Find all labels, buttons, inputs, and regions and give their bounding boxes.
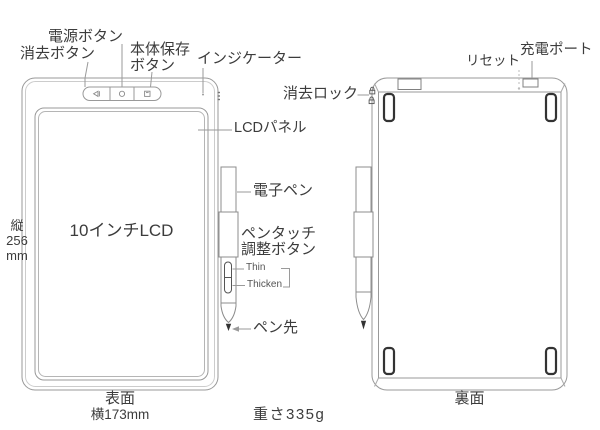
width-dimension-label: 横173mm [22, 408, 218, 422]
height-dimension-line1: 縦 [0, 219, 34, 234]
stylus-grip [219, 212, 238, 257]
mounting-pad [546, 94, 556, 121]
reset-label: リセット [466, 54, 520, 68]
top-button-bar [83, 87, 161, 101]
stylus-barrel-top [356, 167, 371, 212]
stylus-barrel-top [221, 167, 236, 212]
weight-label: 重さ335g [253, 407, 325, 423]
stylus-taper [356, 292, 371, 320]
stylus-barrel-lower [356, 257, 371, 292]
stylus-taper [221, 303, 236, 323]
stylus-grip [354, 212, 373, 257]
pen-tip-label: ペン先 [253, 320, 298, 336]
height-dimension-line3: mm [0, 249, 34, 264]
front-view-label: 表面 [22, 391, 218, 407]
save-button-label-line2: ボタン [130, 58, 190, 74]
thin-label: Thin [246, 263, 265, 274]
back-view-drawing [369, 78, 567, 390]
pen-touch-label: ペンタッチ 調整ボタン [241, 226, 316, 258]
pen-nib [226, 324, 231, 331]
stylus-back-drawing [354, 167, 373, 330]
stylus-label: 電子ペン [253, 183, 313, 199]
indicator-dot [202, 94, 204, 96]
pen-nib [361, 321, 366, 330]
thin-thicken-bracket [281, 269, 290, 288]
back-tablet-outline [372, 78, 567, 390]
power-button-label: 電源ボタン [48, 29, 123, 45]
save-button-label-line1: 本体保存 [130, 42, 190, 58]
erase-lock-label: 消去ロック [283, 86, 358, 102]
product-diagram: 電源ボタン 消去ボタン 本体保存 ボタン インジケーター 消去ロック LCDパネ… [0, 0, 600, 430]
indicator-label: インジケーター [197, 51, 302, 67]
stylus-front-drawing [219, 167, 238, 331]
mounting-pad [384, 94, 394, 121]
save-button-label: 本体保存 ボタン [130, 42, 190, 74]
pen-touch-label-line2: 調整ボタン [241, 242, 316, 258]
height-dimension-line2: 256 [0, 234, 34, 249]
lcd-panel-label: LCDパネル [234, 121, 307, 136]
erase-button-label: 消去ボタン [20, 46, 95, 62]
mounting-pad [546, 348, 556, 374]
charge-port-label: 充電ポート [520, 43, 593, 58]
pen-tip-arrowhead [232, 326, 239, 332]
pen-touch-label-line1: ペンタッチ [241, 226, 316, 242]
back-view-label: 裏面 [372, 391, 567, 407]
screen-size-label: 10インチLCD [35, 222, 208, 240]
thicken-label: Thicken [247, 280, 282, 291]
reset-hole [518, 87, 520, 89]
height-dimension-label: 縦 256 mm [0, 219, 34, 264]
mounting-pad [384, 348, 394, 374]
